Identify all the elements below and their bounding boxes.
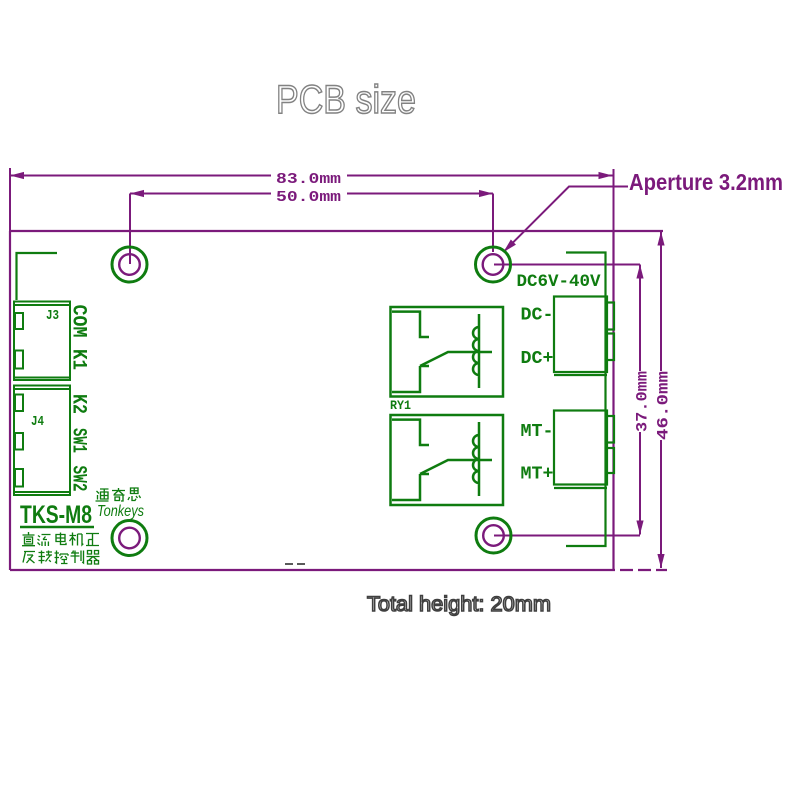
svg-text:SW2: SW2 <box>67 466 90 492</box>
svg-text:MT-: MT- <box>521 422 554 442</box>
svg-text:Tonkeys: Tonkeys <box>97 503 144 520</box>
svg-text:MT+: MT+ <box>521 465 554 485</box>
svg-text:COM: COM <box>67 305 90 338</box>
svg-text:PCB size: PCB size <box>276 78 416 122</box>
svg-text:SW1: SW1 <box>67 428 90 453</box>
svg-text:TKS-M8: TKS-M8 <box>20 501 92 529</box>
svg-text:46.0mm: 46.0mm <box>655 371 673 440</box>
svg-text:J4: J4 <box>31 414 44 430</box>
svg-text:DC-: DC- <box>521 306 554 326</box>
svg-text:RY1: RY1 <box>390 398 411 413</box>
svg-text:83.0mm: 83.0mm <box>276 171 341 188</box>
svg-text:Total height: 20mm: Total height: 20mm <box>367 593 551 616</box>
svg-text:K2: K2 <box>67 394 90 414</box>
svg-text:K1: K1 <box>67 349 90 370</box>
svg-text:50.0mm: 50.0mm <box>276 189 341 206</box>
svg-text:DC+: DC+ <box>521 349 554 369</box>
svg-text:DC6V-40V: DC6V-40V <box>517 272 601 292</box>
svg-text:J3: J3 <box>46 308 59 324</box>
svg-text:Aperture 3.2mm: Aperture 3.2mm <box>629 169 783 195</box>
svg-text:37.0mm: 37.0mm <box>634 371 652 432</box>
